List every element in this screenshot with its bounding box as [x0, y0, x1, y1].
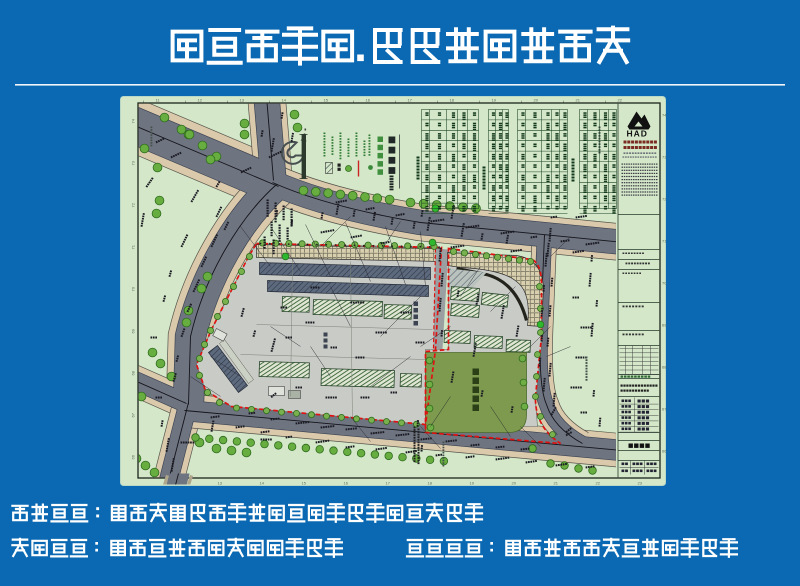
svg-text:19: 19: [470, 481, 475, 486]
svg-text:72: 72: [131, 202, 136, 207]
svg-text:18: 18: [450, 98, 455, 103]
svg-text:73: 73: [662, 155, 667, 160]
svg-text:70: 70: [662, 281, 667, 286]
svg-text:12: 12: [198, 98, 203, 103]
svg-text:20: 20: [512, 481, 517, 486]
svg-text:68: 68: [662, 365, 667, 370]
svg-text:69: 69: [662, 323, 667, 328]
svg-text:15: 15: [324, 98, 329, 103]
svg-text:71: 71: [131, 244, 136, 249]
svg-text:71: 71: [662, 239, 667, 244]
svg-text:16: 16: [366, 98, 371, 103]
svg-text:16: 16: [344, 481, 349, 486]
svg-text:73: 73: [131, 160, 136, 165]
svg-text:67: 67: [662, 407, 667, 412]
svg-text:20: 20: [534, 98, 539, 103]
svg-text:17: 17: [408, 98, 413, 103]
svg-text:22: 22: [596, 481, 601, 486]
svg-text:22: 22: [618, 98, 623, 103]
svg-text:69: 69: [131, 328, 136, 333]
svg-text:67: 67: [131, 412, 136, 417]
svg-text:HAD: HAD: [627, 129, 648, 139]
svg-text:66: 66: [131, 454, 136, 459]
svg-text:21: 21: [576, 98, 581, 103]
svg-text:68: 68: [131, 370, 136, 375]
svg-text:23: 23: [638, 481, 643, 486]
svg-text:14: 14: [282, 98, 287, 103]
svg-text:18: 18: [428, 481, 433, 486]
svg-text:66: 66: [662, 449, 667, 454]
svg-text:13: 13: [218, 481, 223, 486]
svg-text:17: 17: [386, 481, 391, 486]
svg-text:19: 19: [492, 98, 497, 103]
svg-text:14: 14: [260, 481, 265, 486]
svg-text:13: 13: [240, 98, 245, 103]
svg-text:21: 21: [554, 481, 559, 486]
svg-text:74: 74: [131, 118, 136, 123]
svg-text:74: 74: [662, 113, 667, 118]
svg-text:72: 72: [662, 197, 667, 202]
svg-text:15: 15: [302, 481, 307, 486]
svg-text:70: 70: [131, 286, 136, 291]
